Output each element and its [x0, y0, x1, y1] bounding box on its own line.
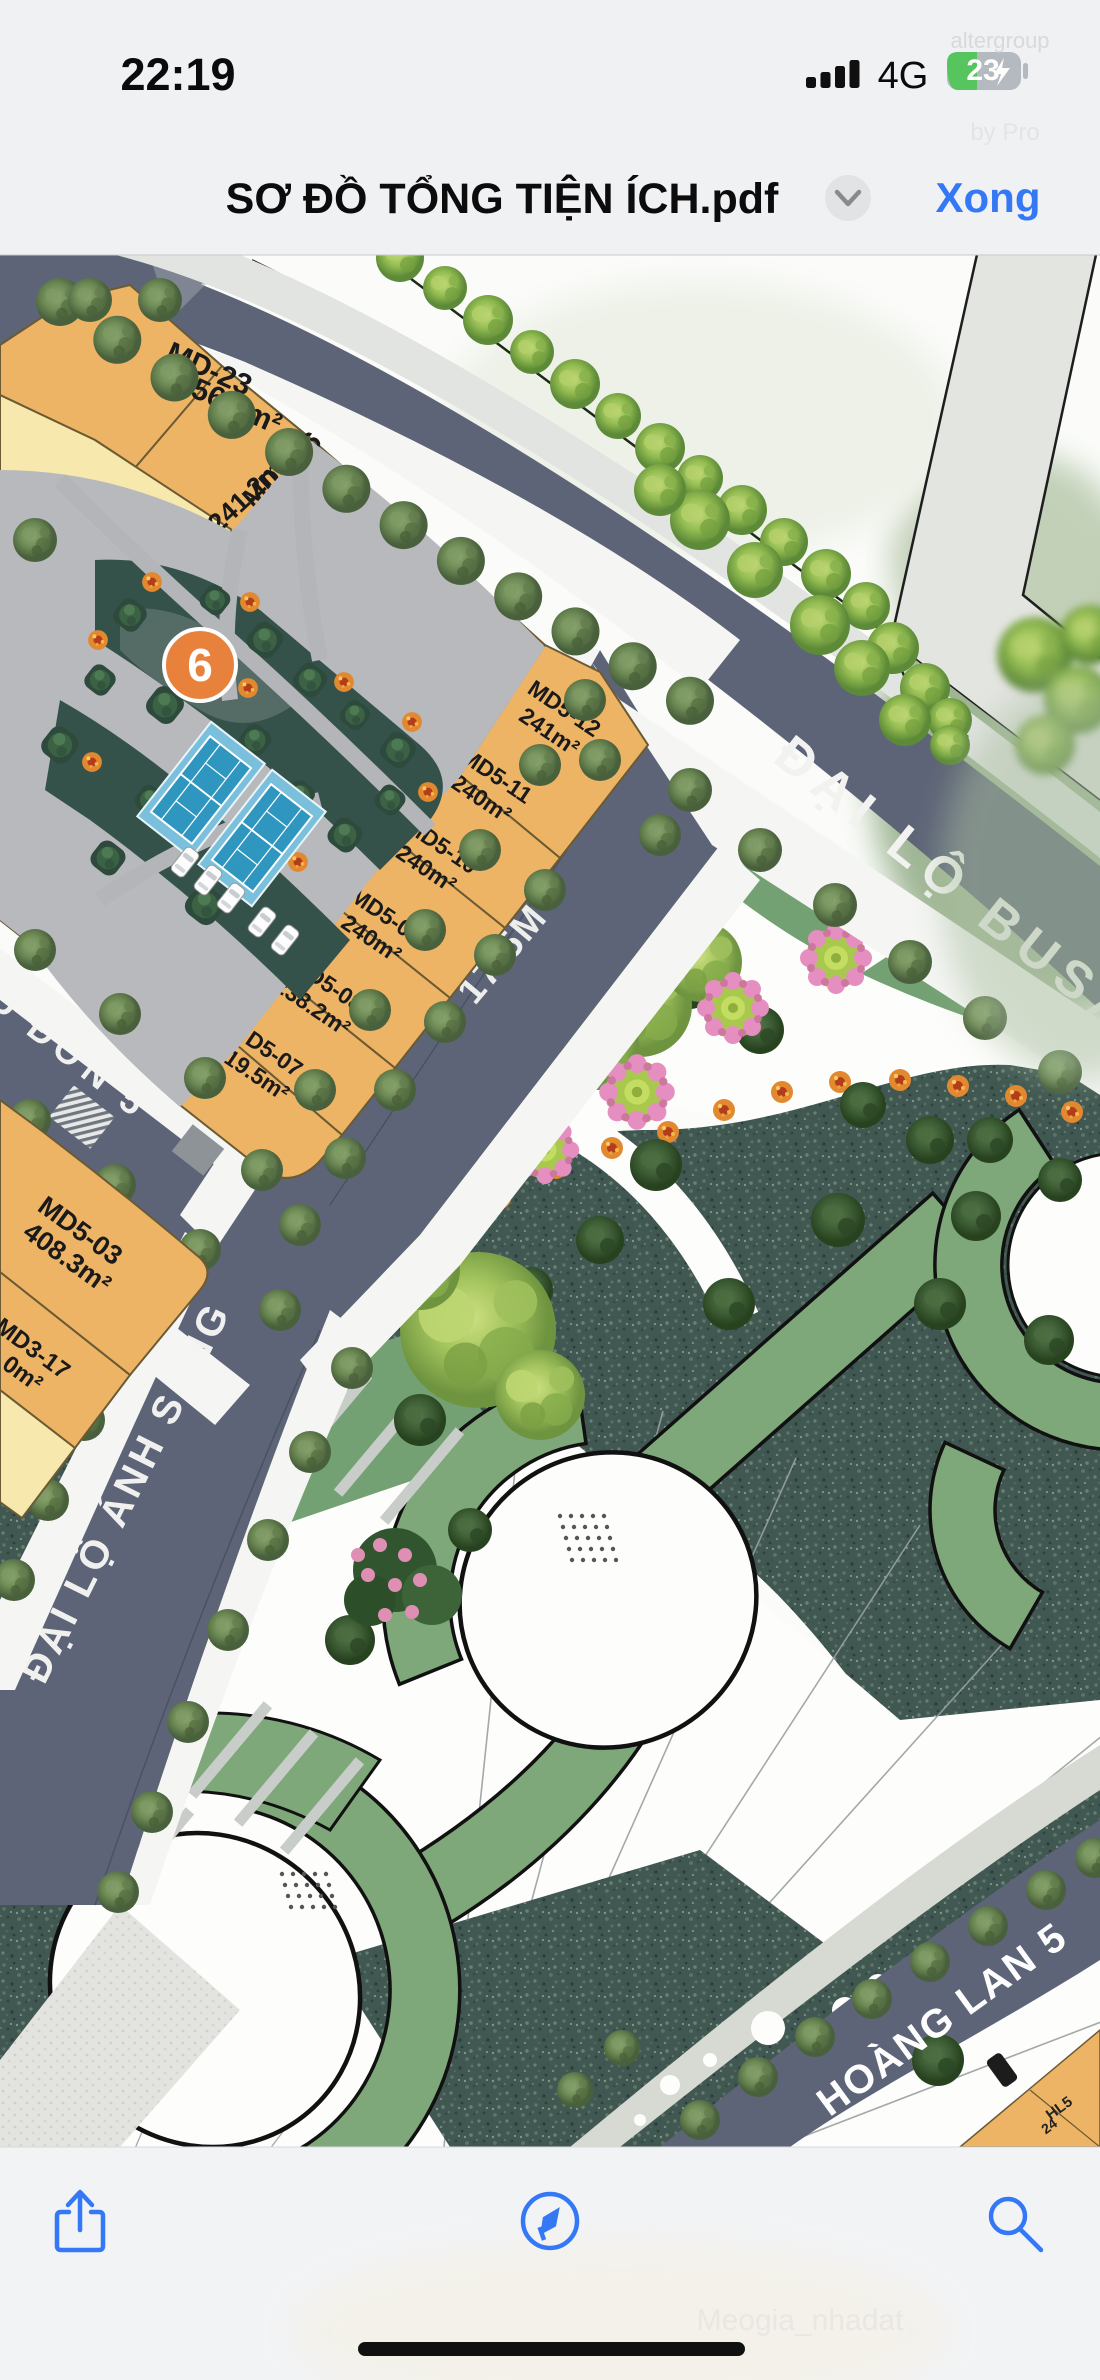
- svg-text:4G: 4G: [878, 55, 929, 97]
- svg-text:23: 23: [966, 54, 999, 87]
- svg-text:22:19: 22:19: [120, 49, 235, 100]
- svg-text:by Pro: by Pro: [970, 119, 1039, 146]
- svg-text:SƠ ĐỒ TỔNG TIỆN ÍCH.pdf: SƠ ĐỒ TỔNG TIỆN ÍCH.pdf: [226, 173, 779, 223]
- svg-text:altergroup: altergroup: [950, 28, 1049, 53]
- svg-text:Xong: Xong: [936, 174, 1041, 221]
- svg-text:6: 6: [187, 639, 213, 691]
- svg-text:Meogia_nhadat: Meogia_nhadat: [697, 2304, 905, 2337]
